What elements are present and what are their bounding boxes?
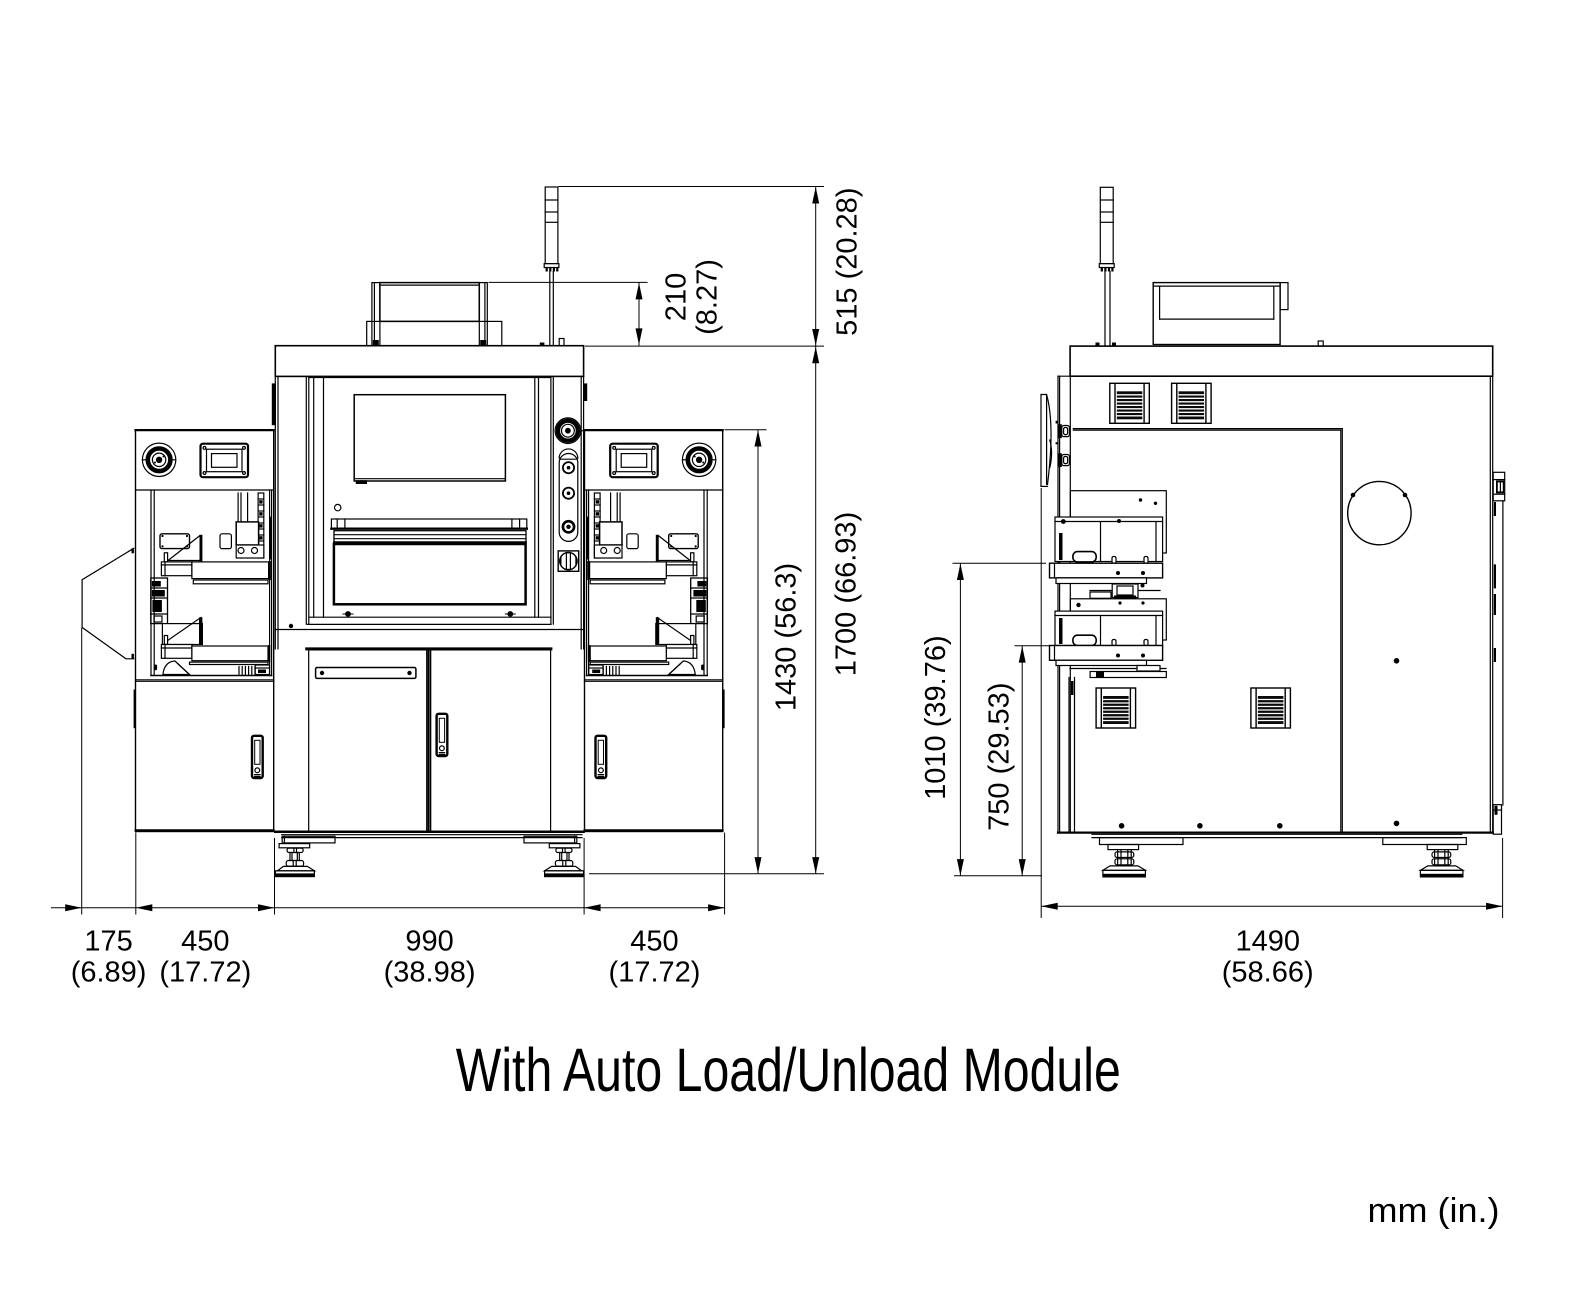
svg-text:210: 210 [661,273,693,321]
svg-text:mm (in.): mm (in.) [1368,1192,1500,1230]
svg-text:(58.66): (58.66) [1222,956,1314,988]
svg-text:With Auto Load/Unload Module: With Auto Load/Unload Module [456,1036,1121,1104]
svg-text:(17.72): (17.72) [609,956,701,988]
svg-text:1010 (39.76): 1010 (39.76) [920,635,952,799]
svg-text:515 (20.28): 515 (20.28) [832,188,864,336]
svg-text:(38.98): (38.98) [384,956,476,988]
svg-text:1490: 1490 [1235,926,1300,958]
svg-text:175: 175 [84,926,132,958]
svg-text:990: 990 [405,926,453,958]
svg-text:1430 (56.3): 1430 (56.3) [771,563,803,711]
svg-text:(17.72): (17.72) [159,956,251,988]
svg-text:450: 450 [630,926,678,958]
svg-text:750 (29.53): 750 (29.53) [984,683,1016,831]
svg-text:(8.27): (8.27) [692,259,724,335]
svg-text:(6.89): (6.89) [71,956,147,988]
svg-text:1700 (66.93): 1700 (66.93) [831,512,863,676]
svg-text:450: 450 [181,926,229,958]
